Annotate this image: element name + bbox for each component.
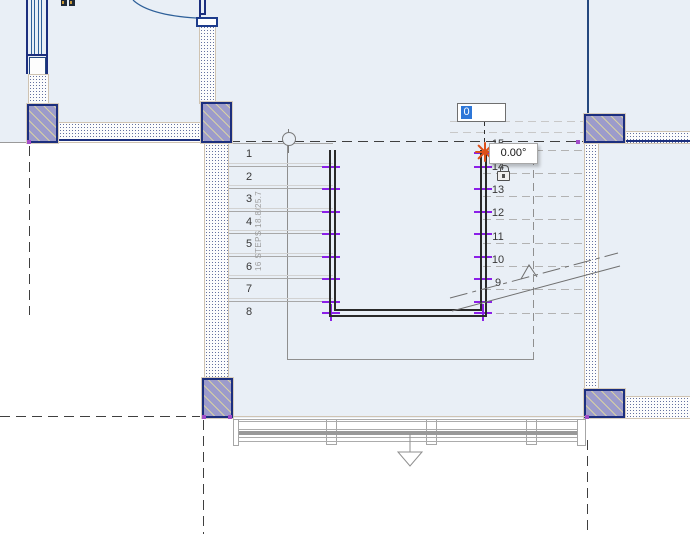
section-arrow-icon — [398, 452, 422, 466]
drawing-overlay — [0, 0, 690, 534]
dimension-input[interactable]: 0 — [457, 103, 506, 122]
angle-tooltip: 0.00° — [489, 143, 538, 164]
lock-icon[interactable] — [496, 165, 511, 183]
lock-keyhole — [502, 174, 505, 178]
cad-drawing-canvas[interactable]: 123456789101112131415 16 STEPS 18.8/25.7 — [0, 0, 690, 534]
stair-direction-line — [450, 253, 618, 298]
door-swing-arc — [133, 0, 196, 18]
dimension-input-value[interactable]: 0 — [461, 106, 472, 119]
stair-direction-line — [452, 266, 620, 311]
